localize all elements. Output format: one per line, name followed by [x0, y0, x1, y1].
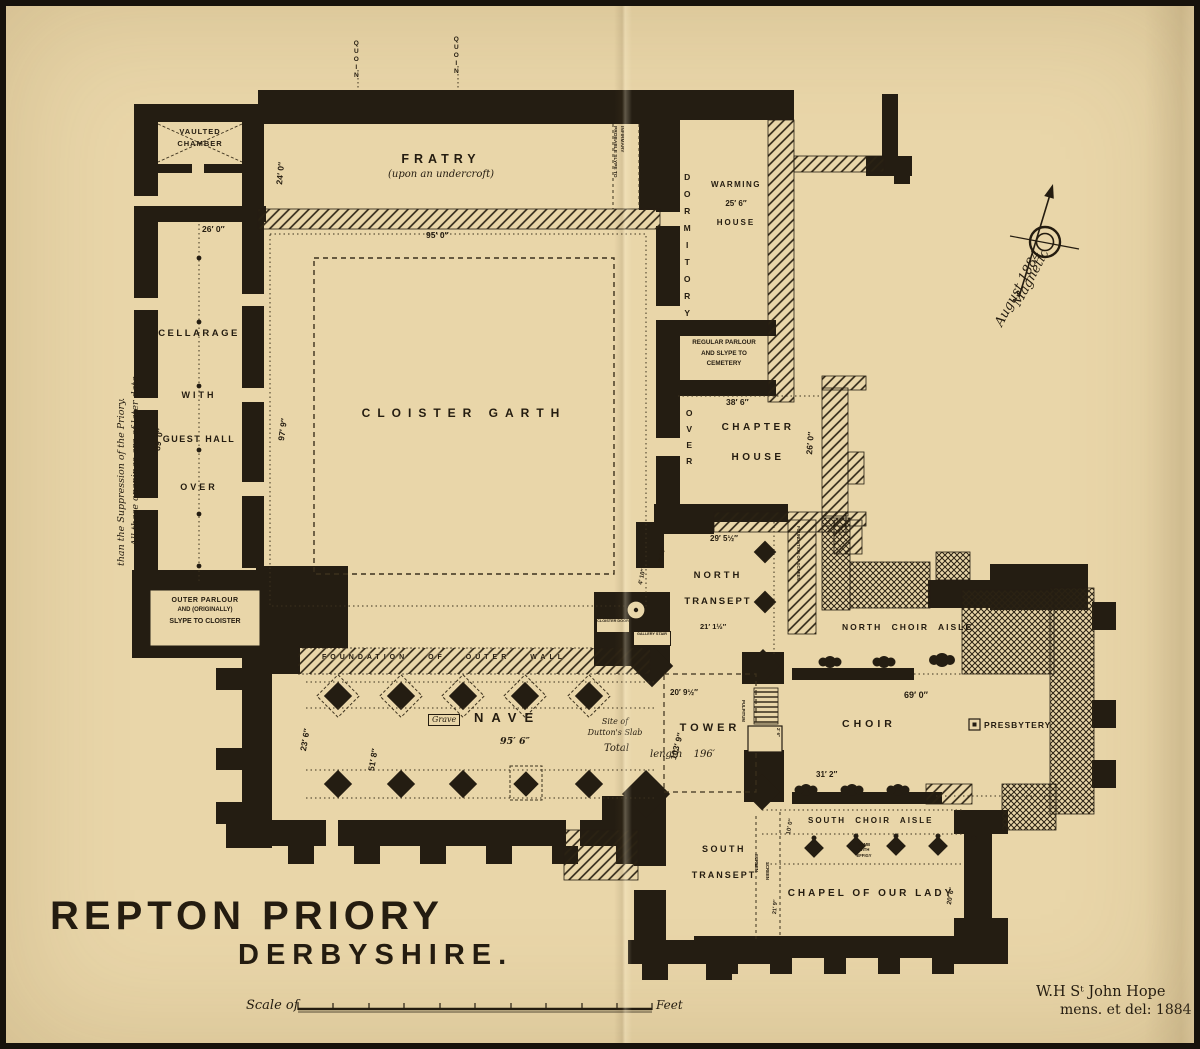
cloister-garth-label: CLOISTER GARTH [354, 406, 574, 420]
regular-parlour-label: REGULAR PARLOUR AND SLYPE TO CEMETERY [672, 338, 776, 370]
dormitory-over-label: OVER [684, 408, 694, 472]
cloister-door-label: CLOISTER DOOR [596, 618, 630, 633]
outer-parlour-line3: SLYPE TO CLOISTER [152, 616, 258, 627]
nave-label: NAVE [474, 710, 541, 726]
page-title: REPTON PRIORY [50, 892, 444, 940]
attribution-line2: mens. et del: 1884 [1060, 1002, 1192, 1019]
foundation-screen-label: FOUNDATION OF SCREEN [796, 526, 801, 632]
north-transept-line2: TRANSEPT [666, 596, 770, 607]
attribution-line1: W.H Sᵗ John Hope [1036, 984, 1165, 1001]
pulpitum-label: PULPITUM [741, 700, 746, 752]
chapel-of-our-lady-label: CHAPEL OF OUR LADY [786, 888, 956, 900]
total-length-value: 196′ [694, 749, 715, 760]
tomb-line3: EFFIGY [850, 853, 878, 858]
dim-warming-house: 25′ 6″ [698, 199, 774, 209]
cellarage-label-1: CELLARAGE [154, 328, 244, 339]
dim-nave-length: 95′ 6″ [500, 736, 530, 747]
tomb-label: TOMB WITH EFFIGY [850, 842, 878, 858]
fratry-sublabel: (upon an undercroft) [346, 169, 536, 181]
dim-choir-length: 69′ 0″ [904, 690, 928, 701]
page-subtitle: DERBYSHIRE. [238, 938, 513, 973]
warming-house-line2: HOUSE [698, 218, 774, 228]
regular-parlour-line3: CEMETERY [672, 359, 776, 370]
dim-north-transept-width: 29′ 5½″ [710, 534, 738, 544]
cellarage-label-4: OVER [154, 482, 244, 493]
vaulted-chamber-label: VAULTED CHAMBER [156, 126, 244, 150]
dim-fratry-length: 95′ 0″ [426, 230, 449, 240]
later-openings-note-line2: than the Suppression of the Priory. [116, 398, 127, 566]
foundation-outer-wall-label: FOUNDATION OF OUTER WALL [322, 654, 566, 662]
probable-slype-line1: PROBABLE SLYPE TO [612, 126, 617, 210]
quoin-label-east: QUOIN [452, 36, 460, 76]
site-of-slab-line1: Site of [580, 716, 650, 727]
fratry-label: FRATRY [346, 152, 536, 167]
later-openings-note-line1: All these openings are of later date [130, 376, 141, 546]
vaulted-chamber-line1: VAULTED [156, 126, 244, 138]
regular-parlour-line1: REGULAR PARLOUR [672, 338, 776, 349]
warming-house-line1: WARMING [698, 180, 774, 190]
screen-label-1: SCREEN [754, 854, 759, 898]
dim-choir-width: 31′ 2″ [816, 770, 837, 780]
outer-parlour-label: OUTER PARLOUR AND (ORIGINALLY) SLYPE TO … [152, 595, 258, 627]
dim-south-transept: 21′ 9″ [772, 899, 780, 914]
choir-label: CHOIR [842, 718, 896, 731]
site-of-slab-line2: Dutton's Slab [580, 727, 650, 738]
total-length-word2: length 196′ [650, 749, 715, 761]
grave-label: Grave [428, 714, 460, 726]
scale-suffix-label: Feet [656, 998, 683, 1012]
scale-bar [298, 1003, 652, 1012]
total-length-word1: Total [604, 743, 629, 755]
north-choir-aisle-label: NORTH CHOIR AISLE [842, 622, 973, 632]
south-choir-aisle-label: SOUTH CHOIR AISLE [808, 816, 933, 826]
cellarage-label-2: WITH [154, 390, 244, 401]
site-of-slab-label: Site of Dutton's Slab [580, 716, 650, 738]
dim-chapter-length: 38′ 6″ [726, 397, 749, 407]
dim-north-transept-length: 21′ 1½″ [700, 622, 726, 631]
scale-prefix-label: Scale of [246, 998, 299, 1014]
stair-vice [627, 601, 645, 619]
presbytery-label: PRESBYTERY [984, 720, 1051, 730]
dim-tower-width: 20′ 9½″ [670, 688, 698, 698]
vaulted-chamber-line2: CHAMBER [156, 138, 244, 150]
chapter-house-line2: HOUSE [698, 452, 818, 464]
outer-parlour-line2: AND (ORIGINALLY) [152, 606, 258, 616]
quoin-label-west: QUOIN [352, 40, 360, 80]
presbytery-icon [969, 719, 980, 730]
dim-chapter-width: 26′ 0″ [804, 431, 816, 454]
chapter-house-line1: CHAPTER [698, 422, 818, 434]
probable-slype-label: PROBABLE SLYPE TO INFIRMARY [612, 126, 624, 210]
regular-parlour-line2: AND SLYPE TO [672, 349, 776, 360]
outer-parlour-line1: OUTER PARLOUR [152, 595, 258, 606]
probable-slype-line2: INFIRMARY [619, 126, 624, 210]
north-transept-line1: NORTH [666, 570, 770, 581]
screen-label-2: SCREEN [765, 862, 770, 906]
dormitory-label: DORMITORY [682, 172, 692, 325]
priory-plan-page: QUOIN QUOIN VAULTED CHAMBER 26′ 0″ CELLA… [0, 0, 1200, 1049]
dim-pulpitum-width: 2′ 6″ [776, 728, 781, 754]
cellarage-label-3: GUEST HALL [154, 434, 244, 445]
dim-cellarage-width: 26′ 0″ [202, 224, 225, 234]
gallery-stair-label: GALLERY STAIR [633, 631, 671, 646]
